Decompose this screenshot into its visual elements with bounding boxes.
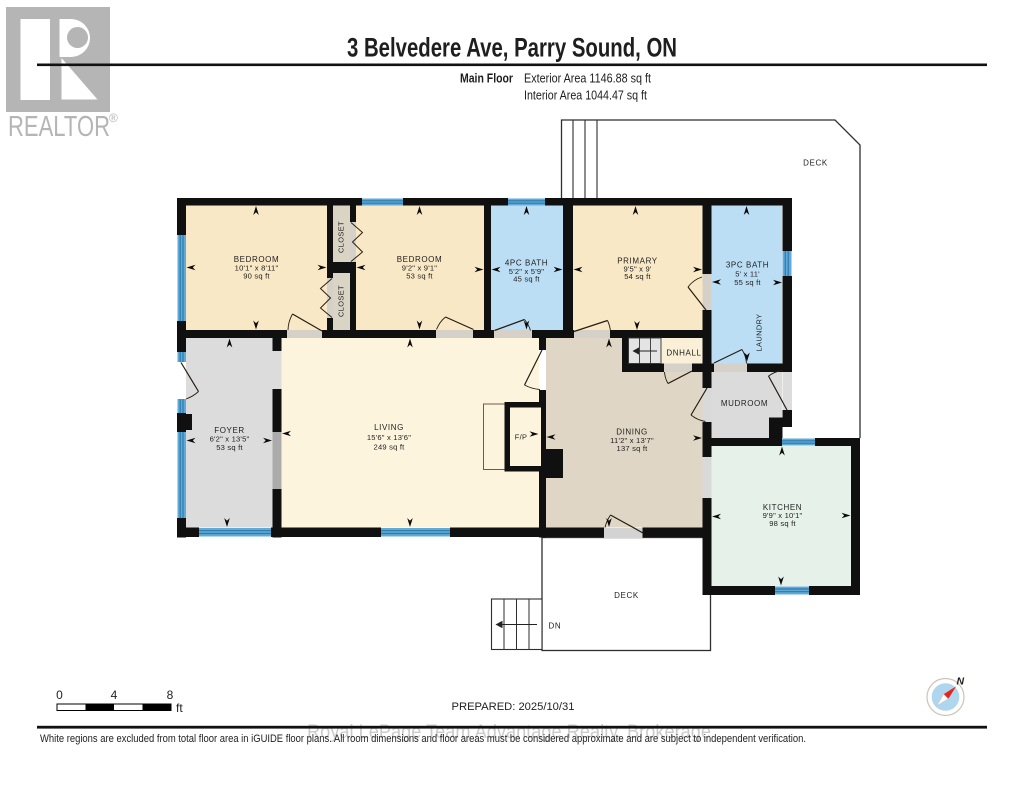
svg-text:Exterior Area 1146.88 sq ft: Exterior Area 1146.88 sq ft <box>524 72 651 86</box>
svg-text:N: N <box>957 676 965 688</box>
svg-text:LIVING: LIVING <box>374 423 404 432</box>
svg-text:®: ® <box>109 111 118 125</box>
svg-text:DECK: DECK <box>803 159 828 168</box>
svg-text:137 sq ft: 137 sq ft <box>617 444 649 453</box>
svg-text:249 sq ft: 249 sq ft <box>374 442 406 451</box>
svg-text:53 sq ft: 53 sq ft <box>406 272 433 281</box>
svg-text:90 sq ft: 90 sq ft <box>243 272 270 281</box>
svg-text:LAUNDRY: LAUNDRY <box>754 314 763 352</box>
svg-text:CLOSET: CLOSET <box>336 221 345 253</box>
svg-text:0: 0 <box>56 688 63 702</box>
svg-text:ft: ft <box>176 701 183 715</box>
svg-text:15'6" x 13'6": 15'6" x 13'6" <box>367 433 411 442</box>
svg-text:DECK: DECK <box>614 591 639 600</box>
svg-text:PREPARED: 2025/10/31: PREPARED: 2025/10/31 <box>452 701 575 713</box>
svg-text:8: 8 <box>167 688 174 702</box>
svg-text:4: 4 <box>111 688 118 702</box>
svg-text:REALTOR: REALTOR <box>8 111 110 143</box>
svg-text:53 sq ft: 53 sq ft <box>216 443 243 452</box>
svg-text:Interior Area 1044.47 sq ft: Interior Area 1044.47 sq ft <box>524 89 647 103</box>
svg-text:DN: DN <box>549 622 562 631</box>
svg-text:CLOSET: CLOSET <box>336 285 345 317</box>
svg-text:54 sq ft: 54 sq ft <box>624 272 651 281</box>
svg-text:55 sq ft: 55 sq ft <box>734 278 761 287</box>
svg-text:3PC BATH: 3PC BATH <box>726 261 769 270</box>
svg-text:F/P: F/P <box>515 433 527 442</box>
svg-text:DNHALL: DNHALL <box>666 349 701 358</box>
svg-text:98 sq ft: 98 sq ft <box>769 519 796 528</box>
svg-text:MUDROOM: MUDROOM <box>721 399 768 408</box>
svg-text:Main Floor: Main Floor <box>460 72 513 86</box>
svg-text:FOYER: FOYER <box>214 426 245 435</box>
svg-text:45 sq ft: 45 sq ft <box>513 275 540 284</box>
svg-text:3 Belvedere Ave, Parry Sound,: 3 Belvedere Ave, Parry Sound, ON <box>347 33 677 63</box>
svg-text:White regions are excluded fro: White regions are excluded from total fl… <box>40 733 806 745</box>
